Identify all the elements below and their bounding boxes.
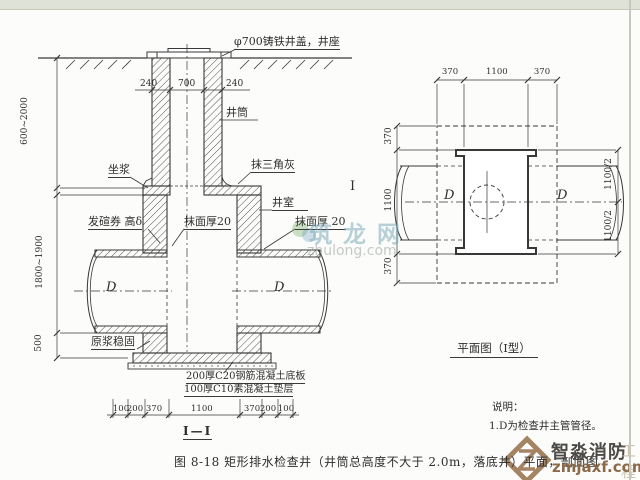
fillet-label: 抹三角灰 [251, 159, 295, 173]
zmjaxf-watermark-url: zmjaxf.com [552, 458, 640, 476]
dim-sump-depth: 500 [34, 303, 44, 383]
plan-right-dim-2: 1100/2 [604, 196, 614, 256]
cover-label: φ700铸铁井盖，井座 [234, 36, 340, 50]
dim-wall-left: 240 [140, 79, 157, 89]
chamber-label: 井室 [272, 197, 308, 211]
plan-pipe-diameter-right: D [557, 188, 567, 203]
section-cut-marker: I [350, 180, 355, 194]
plan-left-dim [394, 123, 455, 286]
notes-heading: 说明： [492, 399, 524, 414]
drawing-page: φ700铸铁井盖，井座 240 700 240 井筒 坐浆 抹三角灰 井室 发碹… [0, 0, 640, 480]
cushion-label: 100厚C10素混凝土垫层 [184, 384, 293, 397]
shaft-label: 井筒 [226, 107, 248, 119]
plan-pipe-diameter-left: D [444, 188, 454, 203]
slab-label: 200厚C20钢筋混凝土底板 [186, 371, 305, 384]
arch-label: 发碹券 高δ [88, 216, 142, 230]
plan-view [394, 77, 624, 286]
dim-wall-right: 240 [226, 79, 243, 89]
left-dim-chain [54, 55, 145, 361]
plan-top-dim-1: 370 [440, 67, 460, 77]
dim-shaft-inner: 700 [178, 79, 195, 89]
bottom-dim-6: 200 [258, 404, 278, 414]
soil-hatch [66, 60, 333, 69]
manhole-cover [147, 49, 231, 59]
bottom-dim-3: 370 [144, 404, 164, 414]
plan-left-dim-1: 370 [384, 106, 394, 166]
page-right-border [629, 0, 631, 480]
zhulong-watermark-url: zhulong.com [307, 243, 397, 259]
pipe-left-section [87, 250, 167, 333]
plaster-mid-label: 抹面厚20 [184, 216, 231, 230]
dim-shaft-height: 600~2000 [20, 81, 30, 161]
base-slab [133, 353, 271, 363]
pipe-diameter-right: D [274, 280, 284, 295]
section-title: I—I [183, 424, 212, 440]
grout-label: 原浆稳固 [91, 336, 135, 350]
bottom-dim-2: 200 [125, 404, 145, 414]
pipe-diameter-left: D [106, 280, 116, 295]
bottom-dim-4: 1100 [191, 404, 211, 414]
figure-caption: 图 8-18 矩形排水检查井（井筒总高度不大于 2.0m，落底井）平面，剖面图 [174, 453, 598, 470]
dim-chamber-height: 1800~1900 [35, 222, 45, 302]
plan-top-dim [434, 77, 560, 147]
bottom-dim-7: 100 [276, 404, 296, 414]
note-line-1: 1.D为检查井主管管径。 [489, 418, 602, 433]
cushion-layer [128, 363, 276, 369]
plan-top-dim-3: 370 [532, 67, 552, 77]
plan-right-dim-1: 1100/2 [604, 144, 614, 204]
mortar-bed-label: 坐浆 [108, 164, 130, 178]
plan-title: 平面图（I型） [450, 340, 538, 358]
plan-top-dim-2: 1100 [486, 67, 506, 77]
